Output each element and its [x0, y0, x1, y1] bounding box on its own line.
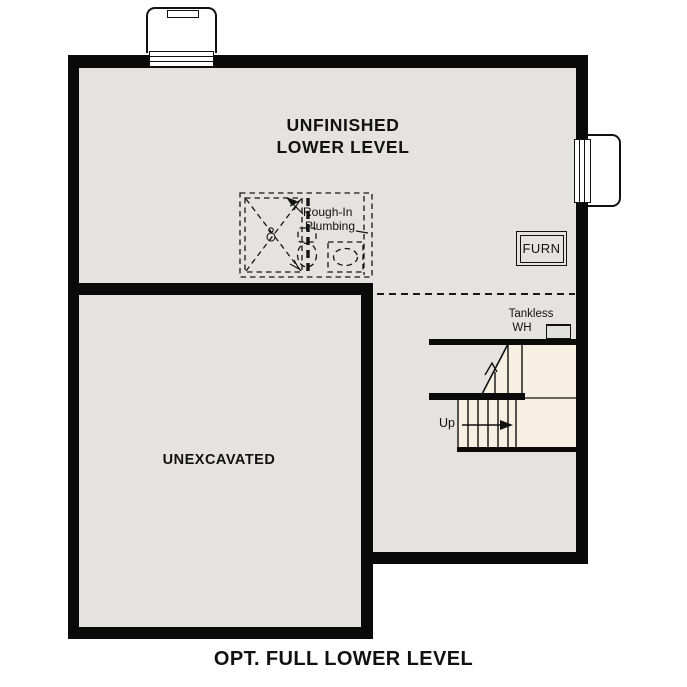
tankless-label-line2: WH: [483, 322, 561, 336]
wall-unexcavated-bottom: [68, 627, 373, 639]
exterior-wall-top: [68, 55, 588, 68]
tankless-label-line1: Tankless: [501, 308, 561, 322]
unexcavated-label: UNEXCAVATED: [119, 452, 319, 469]
room-title-line2: LOWER LEVEL: [203, 136, 483, 158]
room-title: UNFINISHED LOWER LEVEL: [203, 114, 483, 158]
stair-lower-flight-area: [457, 398, 576, 447]
exterior-wall-right: [576, 55, 588, 563]
tankless-wh-label: Tankless WH: [501, 308, 561, 335]
room-title-line1: UNFINISHED: [203, 114, 483, 136]
exterior-wall-left: [68, 55, 79, 639]
floor-unfinished-lower-level: [79, 68, 576, 283]
floor-plan-canvas: FURN: [0, 0, 687, 687]
stair-wall-middle: [429, 393, 525, 400]
egress-window-top: [149, 51, 214, 67]
furnace-box: FURN: [516, 231, 567, 266]
window-well-right: [588, 134, 621, 207]
plan-caption: OPT. FULL LOWER LEVEL: [102, 648, 585, 671]
plumbing-label-line1: Rough-In: [303, 206, 355, 220]
ceiling-break-dashed-line: [377, 293, 575, 295]
stair-wall-top: [429, 339, 576, 345]
wall-unexcavated-top: [68, 283, 373, 295]
wall-unexcavated-right: [361, 283, 373, 639]
window-well-top-ladder: [167, 10, 199, 18]
stair-wall-bottom: [457, 447, 576, 452]
stairs-up-label: Up: [439, 416, 455, 430]
plumbing-label: Rough-In Plumbing: [303, 206, 355, 233]
exterior-wall-bottom-right: [361, 552, 588, 564]
stair-upper-flight-area: [429, 345, 576, 398]
plumbing-label-line2: Plumbing: [305, 220, 355, 234]
egress-window-right: [574, 139, 591, 203]
furnace-label: FURN: [520, 235, 564, 263]
